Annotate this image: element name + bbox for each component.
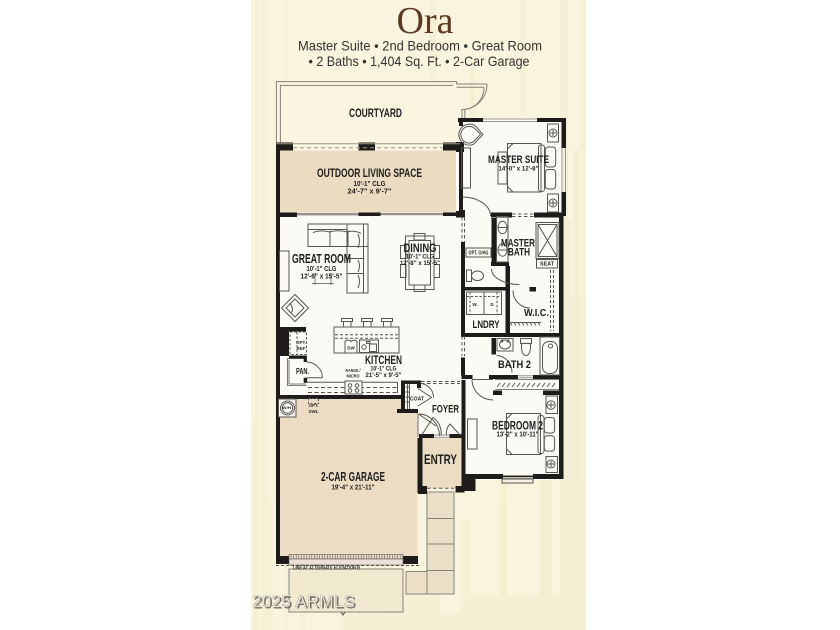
svg-text:OPT.: OPT.	[309, 403, 319, 408]
svg-text:COAT: COAT	[410, 397, 425, 403]
svg-text:13'-2" x 10'-11": 13'-2" x 10'-11"	[497, 432, 539, 439]
svg-text:19'-4" x 21'-11": 19'-4" x 21'-11"	[332, 485, 375, 492]
svg-text:LINE AT ALTERNATE ELEVATION B: LINE AT ALTERNATE ELEVATION B	[293, 566, 360, 572]
svg-text:REF: REF	[297, 346, 306, 351]
svg-text:BATH: BATH	[508, 247, 530, 259]
svg-text:2025 ARMLS: 2025 ARMLS	[252, 591, 355, 611]
svg-text:10'-1" CLG: 10'-1" CLG	[354, 181, 386, 188]
svg-text:12'-6" x 15'-5": 12'-6" x 15'-5"	[301, 274, 343, 281]
svg-text:Ora: Ora	[397, 0, 454, 42]
svg-text:ENTRY: ENTRY	[424, 451, 457, 467]
svg-text:OPT. O/HG: OPT. O/HG	[469, 251, 489, 257]
svg-text:COURTYARD: COURTYARD	[349, 106, 402, 120]
svg-text:14'-0" x 12'-8": 14'-0" x 12'-8"	[499, 166, 539, 173]
svg-text:W.: W.	[472, 302, 477, 307]
svg-text:SWL: SWL	[309, 409, 319, 414]
svg-text:GREAT ROOM: GREAT ROOM	[292, 251, 351, 266]
svg-text:SEAT: SEAT	[540, 262, 555, 268]
svg-text:21'-5" x 9'-5": 21'-5" x 9'-5"	[366, 372, 402, 379]
svg-text:PAN.: PAN.	[296, 367, 309, 376]
svg-text:BATH 2: BATH 2	[498, 359, 531, 371]
svg-text:LNDRY: LNDRY	[473, 319, 500, 331]
svg-text:12'-8" x 15'-5": 12'-8" x 15'-5"	[400, 260, 440, 267]
svg-text:• 2 Baths • 1,404 Sq. Ft. • 2-: • 2 Baths • 1,404 Sq. Ft. • 2-Car Garage	[309, 53, 530, 69]
svg-text:10'-1" CLG: 10'-1" CLG	[307, 266, 337, 273]
svg-text:24'-7" x 9'-7": 24'-7" x 9'-7"	[348, 189, 392, 196]
svg-text:RANGE /: RANGE /	[346, 368, 362, 373]
svg-text:FOYER: FOYER	[432, 404, 459, 416]
svg-text:OUTDOOR LIVING SPACE: OUTDOOR LIVING SPACE	[317, 166, 422, 180]
svg-text:Master Suite • 2nd Bedroom • G: Master Suite • 2nd Bedroom • Great Room	[298, 38, 542, 54]
svg-text:2-CAR GARAGE: 2-CAR GARAGE	[321, 469, 385, 484]
svg-text:MICRO: MICRO	[347, 374, 360, 379]
svg-text:OPT.: OPT.	[296, 340, 306, 345]
svg-text:W.I.C.: W.I.C.	[524, 308, 549, 319]
svg-text:MASTER SUITE: MASTER SUITE	[488, 154, 549, 166]
svg-text:DW: DW	[347, 346, 355, 351]
svg-text:BEDROOM 2: BEDROOM 2	[492, 419, 543, 433]
svg-text:W/H: W/H	[282, 405, 291, 410]
